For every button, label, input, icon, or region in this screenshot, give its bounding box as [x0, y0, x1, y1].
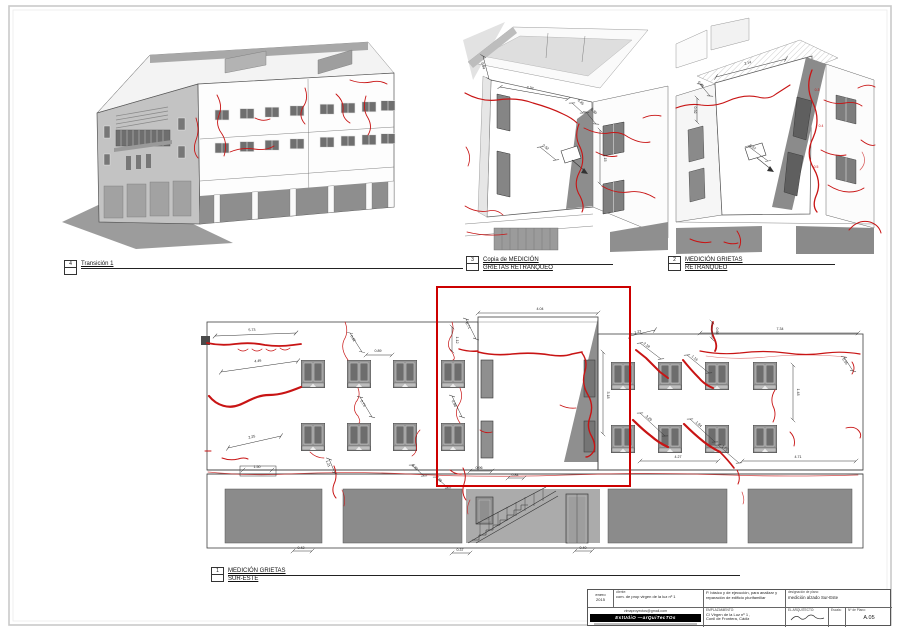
- view-number-box: 4: [64, 260, 77, 275]
- label-rule: [228, 575, 740, 576]
- date-cell: enero2015: [588, 590, 614, 608]
- title-block: enero2015 cliente: com. de prop virgen d…: [587, 589, 891, 626]
- studio-logo: EstUdiO —arQuiTecTOs: [590, 614, 701, 622]
- view-title: MEDICIÓN GRIETAS: [228, 567, 286, 575]
- elevation-windows: [301, 360, 777, 453]
- architect-cell: EL ARQUITECTO:: [786, 608, 829, 627]
- stair-window: [476, 497, 493, 524]
- view-title: Copia de MEDICIÓN: [483, 256, 553, 264]
- view-number: 4: [69, 261, 72, 267]
- svg-text:1.16: 1.16: [691, 354, 699, 362]
- view-subtitle: SUR-ESTE: [228, 575, 286, 583]
- svg-text:1.48: 1.48: [796, 389, 800, 396]
- perspective-retranqueo-view: 2.140.480.920.570.30.40.5: [676, 18, 881, 254]
- cad-drawing: 2.320.450.301.150.840.52 2.140.480.9: [0, 0, 900, 636]
- sheet-number-cell: Nº de Plano: A.05: [846, 608, 892, 627]
- svg-text:0.3: 0.3: [815, 88, 820, 92]
- view-label-transicion: 4 Transición 1: [64, 260, 113, 268]
- svg-text:0.66: 0.66: [715, 328, 719, 335]
- svg-text:3.29: 3.29: [645, 414, 653, 422]
- svg-text:1.94: 1.94: [695, 420, 703, 428]
- svg-text:1.21: 1.21: [325, 460, 331, 468]
- view-title: MEDICIÓN GRIETAS: [685, 256, 743, 264]
- view-subtitle: RETRANQUEO: [685, 264, 743, 272]
- view-number-box: 2: [668, 256, 681, 271]
- logo-cell: vimaproyectos@gmail.com EstUdiO —arQuiTe…: [588, 608, 704, 627]
- svg-text:0.96: 0.96: [476, 466, 483, 470]
- view-label-retranqueo: 2 MEDICIÓN GRIETAS RETRANQUEO: [668, 256, 743, 272]
- svg-text:1.12: 1.12: [455, 337, 459, 344]
- view-number: 3: [471, 257, 474, 263]
- svg-text:0.89: 0.89: [375, 349, 382, 353]
- svg-text:0.42: 0.42: [298, 546, 305, 550]
- view-label-copia-retranqueo: 3 Copia de MEDICIÓN GRIETAS RETRANQUEO: [466, 256, 553, 272]
- view-label-sur-este: 1 MEDICIÓN GRIETAS SUR-ESTE: [211, 567, 286, 583]
- view-subtitle: GRIETAS RETRANQUEO: [483, 264, 553, 272]
- svg-text:0.5: 0.5: [814, 165, 819, 169]
- view-number-box: 3: [466, 256, 479, 271]
- svg-text:0.84: 0.84: [512, 473, 519, 477]
- svg-text:7.34: 7.34: [777, 327, 784, 331]
- svg-text:0.40: 0.40: [580, 546, 587, 550]
- label-rule: [685, 264, 835, 265]
- svg-text:4.71: 4.71: [795, 455, 802, 459]
- svg-text:3.18: 3.18: [606, 392, 610, 399]
- view-title: Transición 1: [81, 260, 113, 268]
- svg-text:1.50: 1.50: [254, 465, 261, 469]
- svg-text:0.37: 0.37: [457, 548, 464, 552]
- svg-text:0.92: 0.92: [693, 107, 697, 114]
- project-cell: P. básico y de ejecución, para analizar …: [704, 590, 786, 608]
- view-number: 1: [216, 568, 219, 574]
- client-cell: cliente: com. de prop virgen de la luz n…: [614, 590, 704, 608]
- sheet-number: A.05: [848, 615, 890, 621]
- svg-text:1.15: 1.15: [603, 155, 607, 162]
- svg-text:4.46: 4.46: [254, 359, 261, 364]
- perspective-copy-view: 2.320.450.301.150.840.52: [463, 22, 668, 252]
- signature: [788, 613, 826, 623]
- view-number-box: 1: [211, 567, 224, 582]
- drawing-sheet: 2.320.450.301.150.840.52 2.140.480.9: [0, 0, 900, 636]
- svg-text:4.27: 4.27: [675, 455, 682, 459]
- studio-smallprint: [594, 623, 697, 625]
- south-east-elevation: 5.734.462.251.500.620.891.120.730.984.04…: [201, 287, 863, 555]
- designation-cell: designación de plano: medición alzado Su…: [786, 590, 892, 608]
- label-rule: [81, 268, 463, 269]
- view-number: 2: [673, 257, 676, 263]
- svg-text:0.84: 0.84: [480, 62, 486, 70]
- svg-text:4.04: 4.04: [537, 307, 544, 311]
- scale-cell: Escala:: [829, 608, 846, 627]
- site-cell: EMPLAZAMIENTO: C/ Virgen de la Luz nº 1 …: [704, 608, 786, 627]
- svg-text:0.48: 0.48: [697, 80, 705, 88]
- svg-text:0.71: 0.71: [464, 322, 471, 330]
- svg-text:2.25: 2.25: [248, 434, 256, 439]
- svg-text:0.4: 0.4: [819, 124, 824, 128]
- svg-text:0.55: 0.55: [841, 357, 848, 365]
- svg-text:5.73: 5.73: [248, 328, 255, 332]
- axonometric-view: [62, 42, 395, 249]
- svg-text:0.98: 0.98: [451, 400, 458, 408]
- label-rule: [483, 264, 613, 265]
